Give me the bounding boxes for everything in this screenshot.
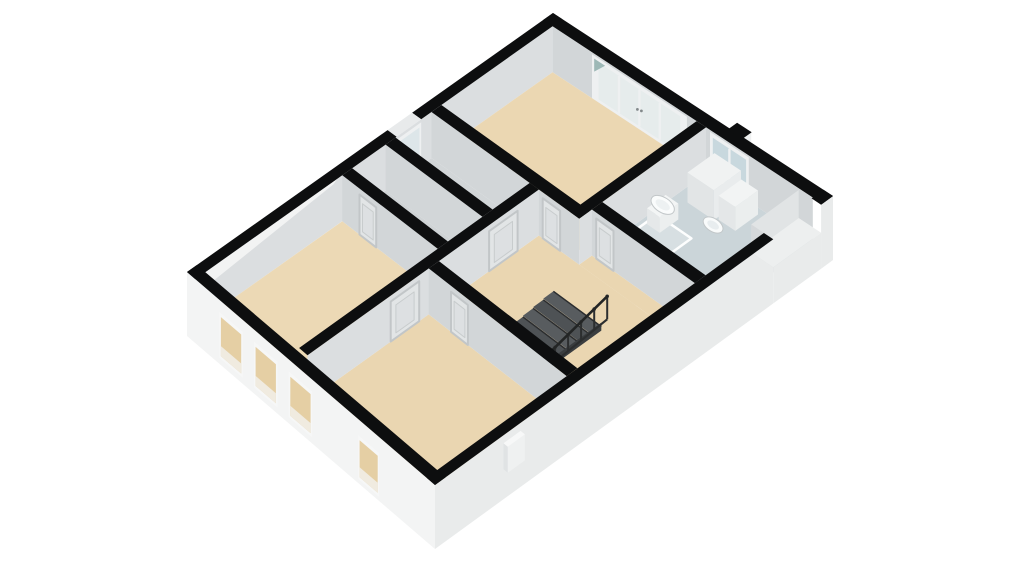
facade-vent-front bbox=[504, 443, 508, 473]
southeast-facade-tip bbox=[821, 196, 833, 269]
floorplan-canvas bbox=[0, 0, 1024, 576]
door-handle-icon bbox=[640, 110, 643, 113]
floorplan-3d-view bbox=[0, 0, 1024, 576]
door-handle-icon bbox=[636, 108, 639, 111]
